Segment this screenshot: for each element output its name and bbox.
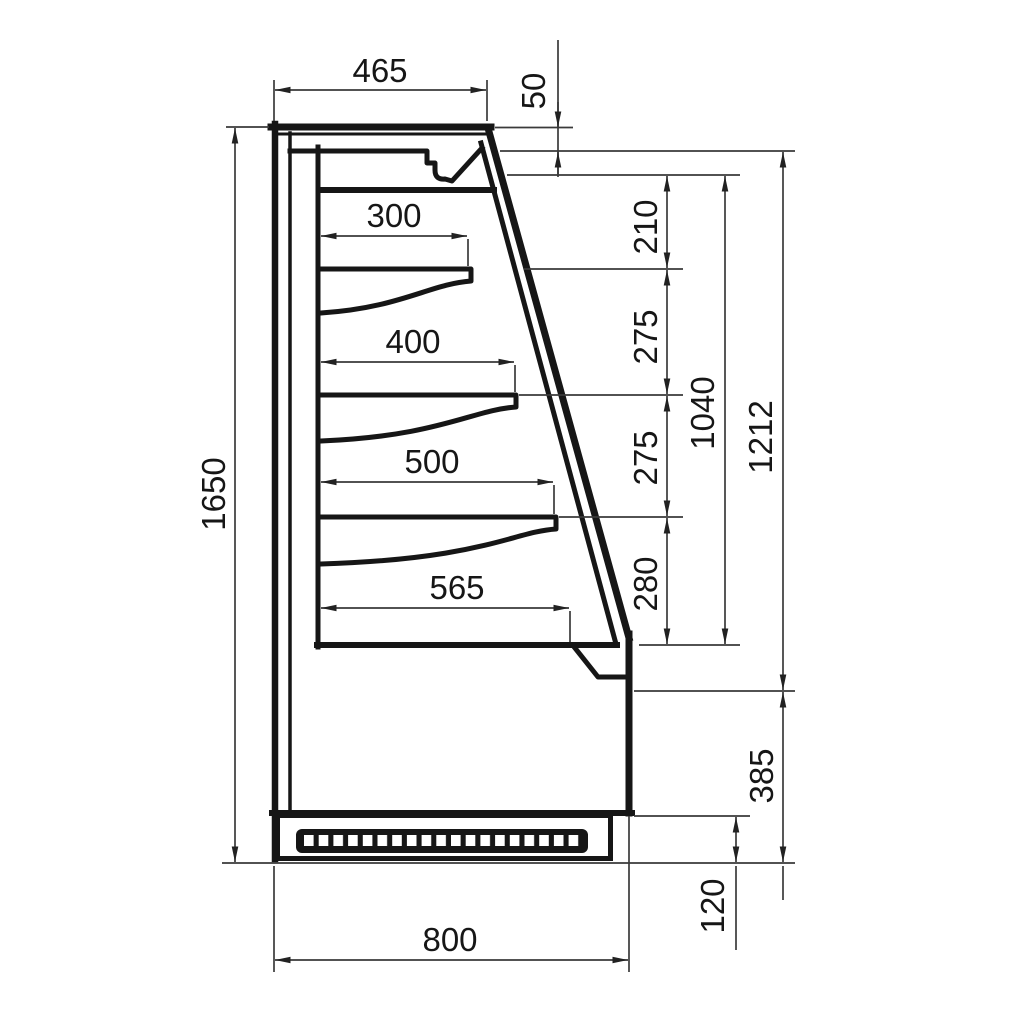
dim-glass-front-height: 1212 bbox=[742, 152, 783, 690]
shelf-3 bbox=[320, 517, 556, 564]
ventilation-grille bbox=[296, 829, 588, 853]
dim-label-lower-body-height: 385 bbox=[743, 748, 780, 803]
dim-label-total-depth: 800 bbox=[422, 921, 477, 958]
dim-plinth-height: 120 bbox=[694, 817, 736, 934]
dim-base-shelf-depth: 565 bbox=[321, 569, 569, 608]
dim-label-shelf-2-depth: 400 bbox=[385, 323, 440, 360]
dim-label-base-shelf-depth: 565 bbox=[429, 569, 484, 606]
shelf-1 bbox=[320, 269, 471, 313]
dim-shelf-2-depth: 400 bbox=[321, 323, 514, 362]
dim-total-depth: 800 bbox=[275, 921, 628, 960]
front-step bbox=[575, 648, 629, 677]
dim-label-gap-shelf1-shelf2: 275 bbox=[627, 309, 664, 364]
dim-shelf-3-depth: 500 bbox=[321, 443, 553, 482]
glass-front-outer bbox=[488, 128, 629, 638]
dim-label-total-height: 1650 bbox=[195, 457, 232, 530]
dim-gap-shelf3-deck: 280 bbox=[627, 518, 667, 644]
dim-gap-canopy-shelf1: 210 bbox=[627, 176, 667, 268]
dim-label-plinth-height: 120 bbox=[694, 878, 731, 933]
dim-label-glass-front-height: 1212 bbox=[742, 400, 779, 473]
dim-total-height: 1650 bbox=[195, 128, 235, 862]
dim-label-gap-shelf3-deck: 280 bbox=[627, 556, 664, 611]
dim-opening-height: 1040 bbox=[684, 176, 725, 644]
cabinet-profile bbox=[271, 124, 632, 859]
dim-gap-shelf1-shelf2: 275 bbox=[627, 270, 667, 394]
dim-lower-body-height: 385 bbox=[743, 692, 783, 862]
drawing-canvas: 1650 465 50 300 400 500 565 bbox=[0, 0, 1024, 1024]
dim-label-top-depth: 465 bbox=[352, 52, 407, 89]
dim-canopy-front-height: 50 bbox=[515, 73, 558, 177]
dim-label-canopy-front-height: 50 bbox=[515, 73, 552, 110]
dim-top-depth: 465 bbox=[275, 52, 486, 90]
dim-label-shelf-1-depth: 300 bbox=[366, 197, 421, 234]
shelf-2 bbox=[320, 395, 516, 441]
dim-label-gap-canopy-shelf1: 210 bbox=[627, 199, 664, 254]
dim-gap-shelf2-shelf3: 275 bbox=[627, 396, 667, 516]
grille-slots bbox=[304, 829, 583, 853]
dim-shelf-1-depth: 300 bbox=[321, 197, 467, 236]
dim-label-gap-shelf2-shelf3: 275 bbox=[627, 430, 664, 485]
dim-label-opening-height: 1040 bbox=[684, 376, 721, 449]
technical-drawing: 1650 465 50 300 400 500 565 bbox=[0, 0, 1024, 1024]
dim-label-shelf-3-depth: 500 bbox=[404, 443, 459, 480]
